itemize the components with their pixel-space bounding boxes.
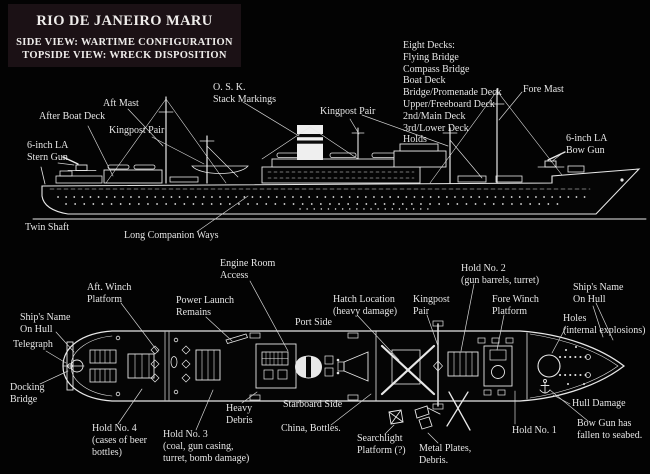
label-line: (gun barrels, turret) [461,275,539,287]
label-line: (internal explosions) [563,325,645,337]
metal-plates-debris-shapes [415,406,440,429]
label-engine-room-access: Engine Room Access [220,258,275,282]
label-twin-shaft: Twin Shaft [25,222,69,234]
label-kingpost-pair-topside: Kingpost Pair [413,294,450,318]
deck-list-item: Holds [403,134,502,146]
label-line: Searchlight [357,433,406,445]
subtitle-topside-view: TOPSIDE VIEW: WRECK DISPOSITION [8,50,241,63]
label-line: Bridge [10,394,44,406]
label-ships-name-bow: Ship's Name On Hull [573,282,623,306]
label-docking-bridge: Docking Bridge [10,382,44,406]
label-kingpost-pair-mid: Kingpost Pair [320,106,375,118]
label-line: turret, bomb damage) [163,453,249,465]
label-line: Ship's Name [20,312,70,324]
label-line: Debris. [419,455,471,467]
label-hold-no-3: Hold No. 3 (coal, gun casing, turret, bo… [163,429,249,464]
label-hold-no-1: Hold No. 1 [512,425,557,437]
deck-list-item: 3rd/Lower Deck [403,123,502,135]
label-line: Stern Gun [27,152,68,164]
label-line: fallen to seabed. [577,430,642,442]
label-line: (coal, gun casing, [163,441,249,453]
label-bow-gun: 6-inch LA Bow Gun [566,133,607,157]
label-line: Holes [563,313,645,325]
deck-list-item: Bridge/Promenade Deck [403,87,502,99]
label-ships-name-stern: Ship's Name On Hull [20,312,70,336]
label-line: Hatch Location [333,294,397,306]
deck-list-item: 2nd/Main Deck [403,111,502,123]
label-fore-mast: Fore Mast [523,84,564,96]
label-line: Hold No. 2 [461,263,539,275]
label-heavy-debris: Heavy Debris [226,403,253,427]
label-kingpost-pair-aft: Kingpost Pair [109,125,164,137]
label-line: Fore Winch [492,294,539,306]
label-starboard-side: Starboard Side [283,399,342,411]
searchlight-platform-debris [389,410,403,424]
label-line: Platform [87,294,131,306]
label-osk-stack-markings: O. S. K. Stack Markings [213,82,276,106]
label-line: On Hull [573,294,623,306]
deck-list: Eight Decks: Flying Bridge Compass Bridg… [403,40,502,146]
label-line: O. S. K. [213,82,276,94]
label-aft-winch-platform: Aft. Winch Platform [87,282,131,306]
label-line: On Hull [20,324,70,336]
diagram-title: RIO DE JANEIRO MARU [8,13,241,30]
label-line: Metal Plates, [419,443,471,455]
subtitle-side-view: SIDE VIEW: WARTIME CONFIGURATION [8,37,241,50]
title-box: RIO DE JANEIRO MARU SIDE VIEW: WARTIME C… [8,4,241,67]
funnel [297,125,323,160]
deck-list-item: Compass Bridge [403,64,502,76]
label-line: Debris [226,415,253,427]
label-aft-mast: Aft Mast [103,98,139,110]
label-line: Bow Gun has [577,418,642,430]
label-power-launch-remains: Power Launch Remains [176,295,234,319]
label-telegraph: Telegraph [13,339,53,351]
label-line: Hold No. 3 [163,429,249,441]
label-line: Docking [10,382,44,394]
label-line: (cases of beer [92,435,147,447]
label-line: Power Launch [176,295,234,307]
label-line: (heavy damage) [333,306,397,318]
label-line: Stack Markings [213,94,276,106]
label-long-companion-ways: Long Companion Ways [124,230,219,242]
label-fore-winch-platform: Fore Winch Platform [492,294,539,318]
label-line: Kingpost [413,294,450,306]
label-holes-internal: Holes (internal explosions) [563,313,645,337]
label-line: 6-inch LA [27,140,68,152]
label-line: Heavy [226,403,253,415]
label-line: Bow Gun [566,145,607,157]
label-searchlight-platform: Searchlight Platform (?) [357,433,406,457]
label-line: Access [220,270,275,282]
label-line: Hold No. 4 [92,423,147,435]
label-metal-plates-debris: Metal Plates, Debris. [419,443,471,467]
label-port-side: Port Side [295,317,332,329]
deck-list-item: Flying Bridge [403,52,502,64]
label-line: Platform [492,306,539,318]
label-hold-no-4: Hold No. 4 (cases of beer bottles) [92,423,147,458]
label-china-bottles: China, Bottles. [281,423,341,435]
deck-list-item: Upper/Freeboard Deck [403,99,502,111]
label-line: 6-inch LA [566,133,607,145]
label-line: bottles) [92,447,147,459]
label-line: Pair [413,306,450,318]
label-line: Aft. Winch [87,282,131,294]
deck-list-item: Boat Deck [403,75,502,87]
label-line: Platform (?) [357,445,406,457]
label-hull-damage: Hull Damage [572,398,626,410]
label-hold-no-2: Hold No. 2 (gun barrels, turret) [461,263,539,287]
diagram-canvas: RIO DE JANEIRO MARU SIDE VIEW: WARTIME C… [0,0,650,474]
label-line: Engine Room [220,258,275,270]
label-bow-gun-fallen: Bow Gun has fallen to seabed. [577,418,642,442]
label-hatch-location: Hatch Location (heavy damage) [333,294,397,318]
label-line: Ship's Name [573,282,623,294]
deck-list-heading: Eight Decks: [403,40,502,52]
label-after-boat-deck: After Boat Deck [39,111,105,123]
label-line: Remains [176,307,234,319]
label-stern-gun: 6-inch LA Stern Gun [27,140,68,164]
